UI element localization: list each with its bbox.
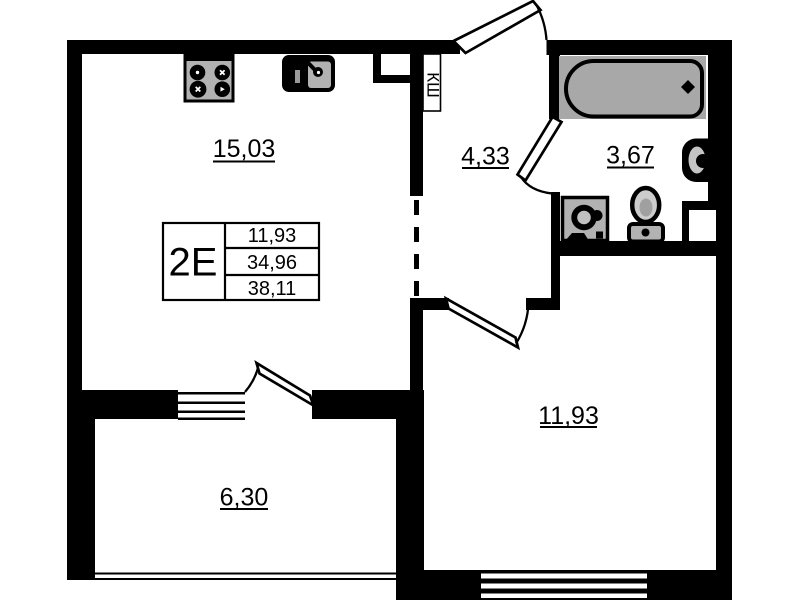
svg-text:34,96: 34,96 [247,252,297,274]
svg-text:15,03: 15,03 [213,135,276,163]
svg-text:КШ: КШ [424,72,443,97]
svg-text:2Е: 2Е [169,241,218,285]
svg-text:6,30: 6,30 [220,484,269,512]
svg-text:38,11: 38,11 [248,278,297,300]
svg-text:11,93: 11,93 [248,225,297,247]
svg-text:3,67: 3,67 [606,142,655,170]
svg-text:11,93: 11,93 [538,402,599,430]
svg-text:4,33: 4,33 [461,143,510,171]
